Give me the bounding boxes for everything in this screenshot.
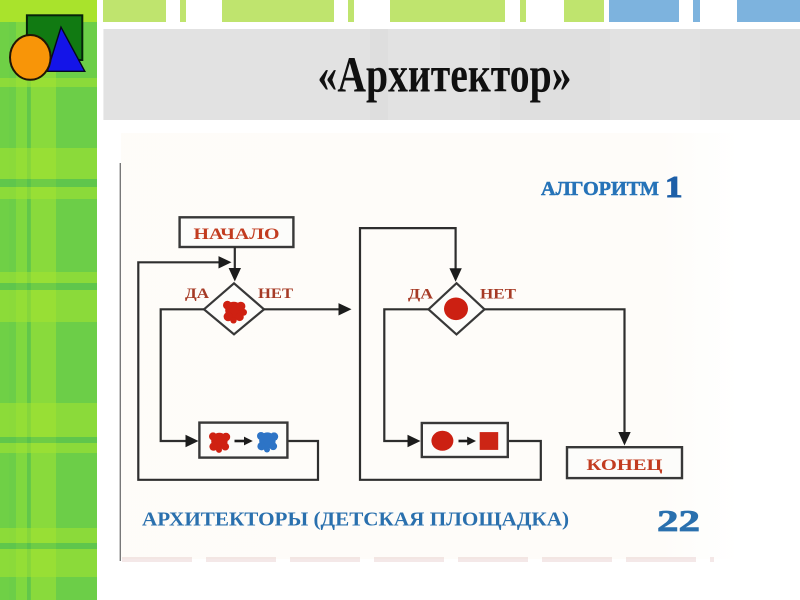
svg-text:КОНЕЦ: КОНЕЦ: [587, 457, 664, 474]
svg-text:АРХИТЕКТОРЫ (ДЕТСКАЯ ПЛОЩАДКА): АРХИТЕКТОРЫ (ДЕТСКАЯ ПЛОЩАДКА): [142, 509, 569, 531]
svg-text:22: 22: [657, 503, 700, 538]
svg-text:НЕТ: НЕТ: [258, 286, 293, 302]
svg-text:ДА: ДА: [185, 286, 209, 302]
svg-text:ДА: ДА: [408, 287, 433, 303]
svg-text:НАЧАЛО: НАЧАЛО: [194, 226, 280, 243]
svg-text:1: 1: [665, 169, 683, 204]
svg-text:«Архитектор»: «Архитектор»: [318, 48, 572, 104]
svg-text:АЛГОРИТМ: АЛГОРИТМ: [541, 178, 659, 200]
svg-text:НЕТ: НЕТ: [480, 287, 516, 303]
